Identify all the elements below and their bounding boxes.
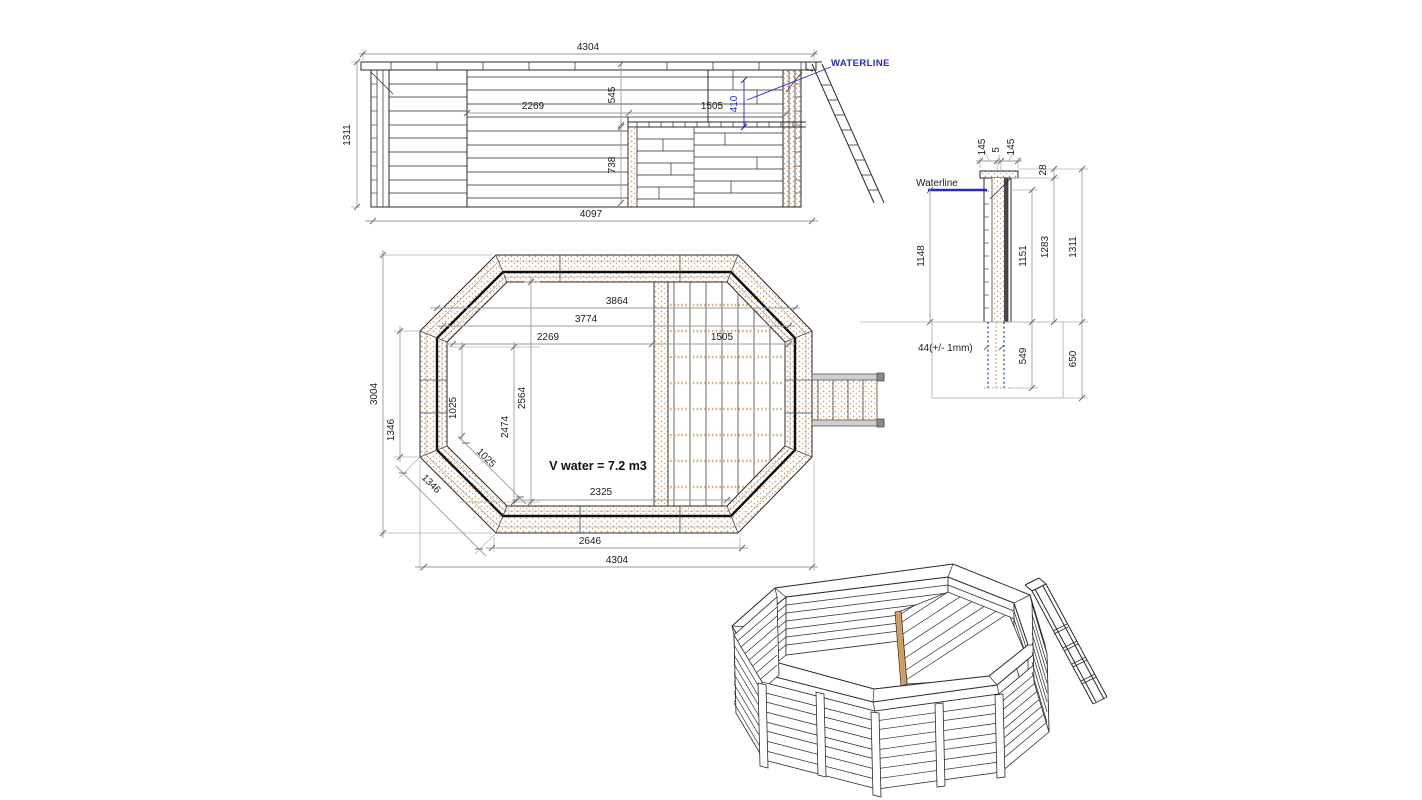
dim-elev-738: 738 bbox=[607, 156, 618, 173]
dim-elev-410: 410 bbox=[729, 95, 740, 112]
dim-plan-2474: 2474 bbox=[500, 415, 511, 438]
dim-sect-1151: 1151 bbox=[1018, 245, 1029, 267]
dim-plan-1025-vert: 1025 bbox=[448, 396, 459, 419]
water-volume-label: V water = 7.2 m3 bbox=[549, 459, 647, 473]
dim-sect-1311: 1311 bbox=[1068, 236, 1079, 258]
dim-elev-2269: 2269 bbox=[522, 101, 545, 112]
dim-sect-1148: 1148 bbox=[916, 245, 927, 267]
dim-elev-545: 545 bbox=[607, 86, 618, 103]
plan-view: 3864 3774 2269 1505 3004 1346 1346 1025 … bbox=[369, 250, 884, 571]
pool-drawing: 4304 1311 2269 545 1505 410 738 4097 WAT… bbox=[0, 0, 1422, 800]
dim-sect-cap-gap: 5 bbox=[991, 147, 1002, 153]
dim-plan-2269: 2269 bbox=[537, 332, 560, 343]
technical-drawing-canvas: 4304 1311 2269 545 1505 410 738 4097 WAT… bbox=[0, 0, 1422, 800]
dim-elev-bottom-width: 4097 bbox=[580, 209, 603, 220]
dim-plan-3004: 3004 bbox=[369, 382, 380, 405]
dim-sect-650: 650 bbox=[1068, 350, 1079, 367]
dim-sect-549: 549 bbox=[1018, 347, 1029, 364]
dim-plan-1505: 1505 bbox=[711, 332, 734, 343]
dim-plan-1025-diag: 1025 bbox=[474, 446, 498, 470]
dim-elev-height: 1311 bbox=[342, 124, 353, 146]
dim-plan-3774: 3774 bbox=[575, 314, 598, 325]
waterline-label-elevation: WATERLINE bbox=[831, 58, 890, 69]
dim-sect-cap1: 145 bbox=[977, 138, 988, 155]
dim-elev-top-width: 4304 bbox=[577, 42, 600, 53]
dim-sect-cap3: 145 bbox=[1006, 138, 1017, 155]
dim-plan-4304: 4304 bbox=[606, 555, 629, 566]
cross-section-view: Waterline 145 5 145 1148 1151 1283 28 13… bbox=[860, 138, 1088, 401]
dim-plan-2564: 2564 bbox=[517, 386, 528, 409]
dim-sect-1283: 1283 bbox=[1040, 235, 1051, 258]
dim-elev-1505: 1505 bbox=[701, 101, 724, 112]
dim-plan-3864: 3864 bbox=[606, 296, 629, 307]
dim-plan-2325: 2325 bbox=[590, 487, 613, 498]
dim-plan-2646: 2646 bbox=[579, 536, 602, 547]
dim-sect-44mm: 44(+/- 1mm) bbox=[918, 343, 973, 354]
waterline-label-section: Waterline bbox=[916, 178, 958, 189]
elevation-view: 4304 1311 2269 545 1505 410 738 4097 WAT… bbox=[342, 42, 890, 224]
dim-plan-1346-left: 1346 bbox=[386, 418, 397, 441]
dim-sect-28: 28 bbox=[1038, 164, 1049, 176]
